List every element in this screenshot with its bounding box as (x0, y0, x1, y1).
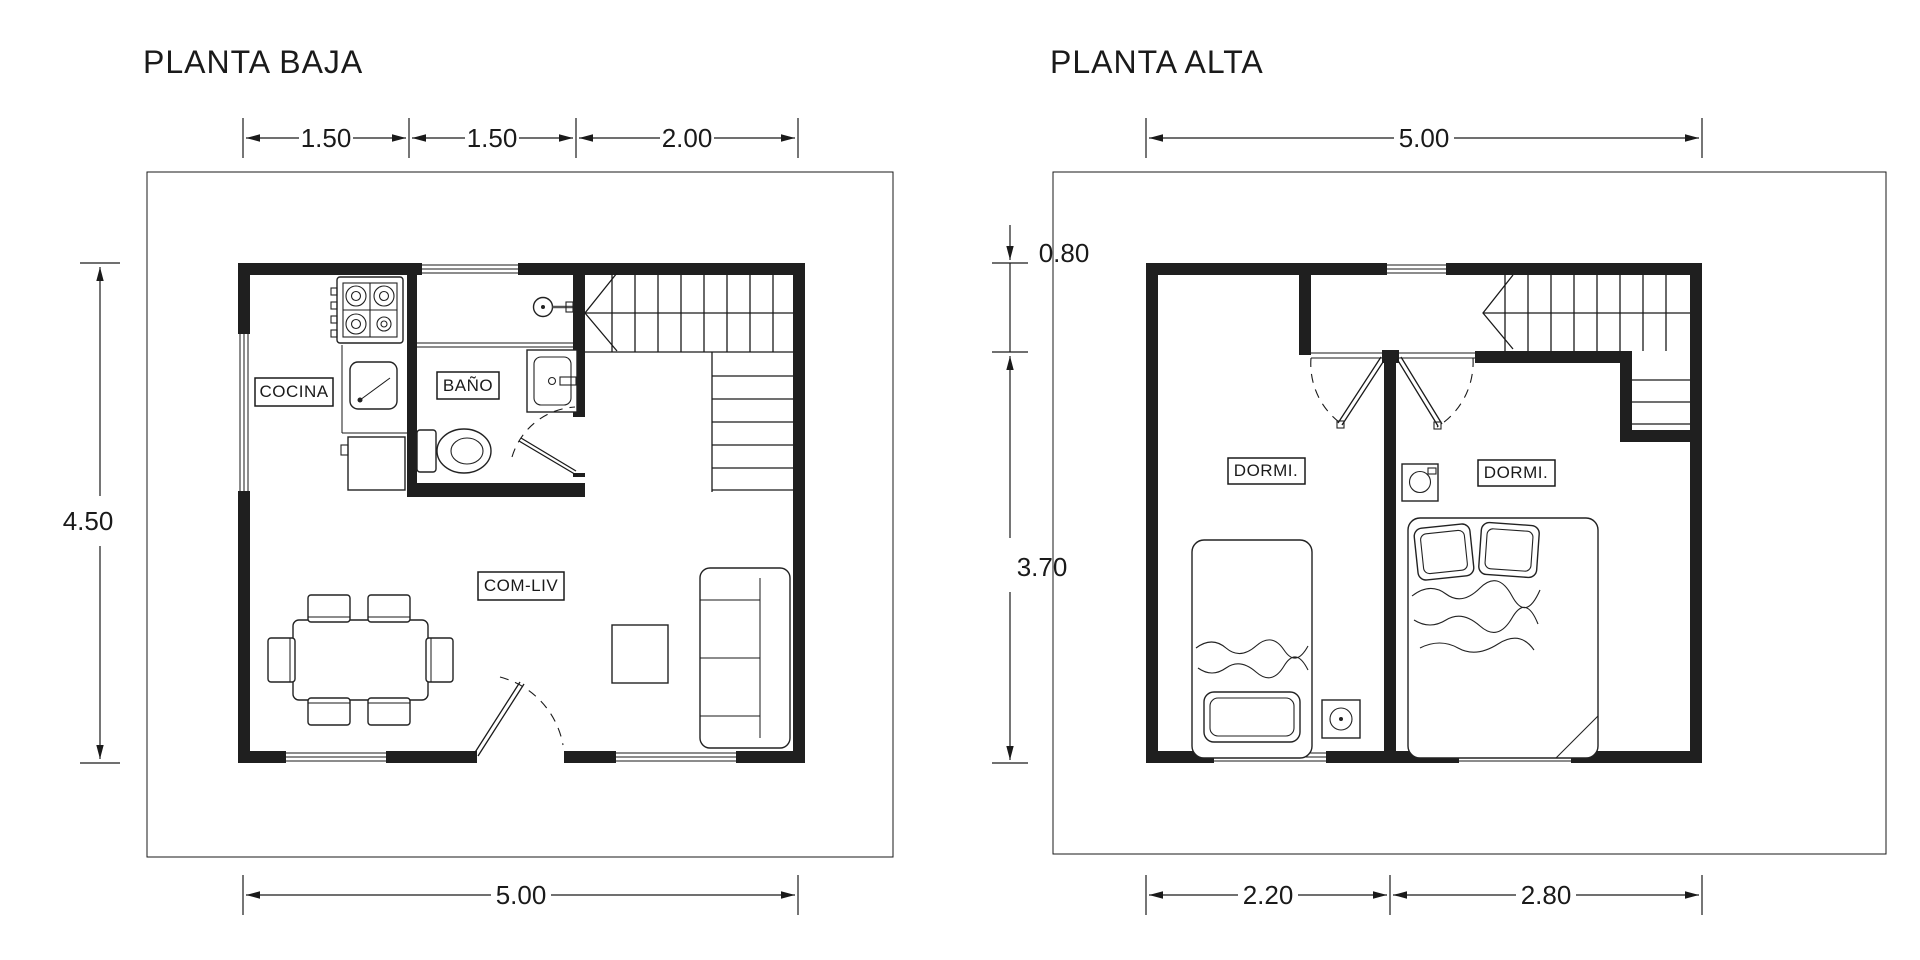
dim-bottom-width: 5.00 (496, 880, 547, 910)
dormi-right-label: DORMI. (1484, 463, 1548, 482)
living-bottom-window-left (282, 751, 390, 763)
shower-head-symbol (534, 298, 574, 317)
dim-bottom: 5.00 (243, 875, 798, 915)
dim-left-lower: 3.70 (1017, 552, 1068, 582)
kitchen-left-window (238, 330, 250, 495)
planta-baja-plan: PLANTA BAJA (63, 44, 893, 915)
kitchen-cabinet (341, 437, 405, 490)
bedroom-left-door-swing-arc (1311, 358, 1343, 425)
dim-left-alta: 0.80 3.70 (992, 225, 1089, 763)
double-bed (1408, 518, 1598, 758)
living-bottom-window-right (612, 751, 740, 763)
sofa (700, 568, 790, 748)
bath-top-window (418, 263, 522, 275)
bano-label: BAÑO (443, 376, 493, 395)
stair-treads-upper-alta (1483, 275, 1690, 351)
kitchen-sink (350, 362, 397, 409)
dim-bottom-alta: 2.20 2.80 (1146, 875, 1702, 915)
planta-baja-dimensions: 1.50 1.50 2.00 4.50 5.00 (63, 118, 798, 915)
dim-top-alta: 5.00 (1146, 118, 1702, 158)
dim-top: 1.50 1.50 2.00 (243, 118, 798, 158)
cocina-label: COCINA (259, 382, 328, 401)
nightstand-left (1322, 700, 1360, 738)
bedroom-right-door-swing-arc (1437, 358, 1473, 427)
coffee-table (612, 625, 668, 683)
stairwell-side-wall (1620, 351, 1632, 442)
hall-top-window (1383, 263, 1450, 275)
single-bed (1192, 540, 1312, 758)
bedroom-partition-wall (1384, 355, 1396, 751)
bathroom-door (512, 407, 585, 477)
comliv-label: COM-LIV (484, 576, 559, 595)
toilet-symbol (417, 429, 491, 473)
floor-plan-sheet: PLANTA BAJA (0, 0, 1920, 960)
dim-left-upper: 0.80 (1039, 238, 1090, 268)
dim-left-height: 4.50 (63, 506, 114, 536)
bedroom-left-door (1311, 357, 1385, 428)
stairwell-bottom-wall (1620, 430, 1702, 442)
bedroom-right-door (1397, 357, 1473, 429)
planta-alta-plan: PLANTA ALTA (992, 44, 1886, 915)
bedroom-left-furniture (1192, 540, 1360, 758)
stair-treads-upper (585, 275, 793, 352)
entrance-door (474, 677, 567, 763)
nightstand-right (1402, 464, 1438, 501)
stair-break-chevron-alta (1483, 275, 1513, 349)
dim-top-width-alta: 5.00 (1399, 123, 1450, 153)
bath-bottom-wall (407, 483, 585, 497)
planta-baja-title: PLANTA BAJA (143, 44, 363, 80)
dim-top-3: 2.00 (662, 123, 713, 153)
planta-alta-staircase (1483, 275, 1690, 424)
hall-stub-wall (1299, 275, 1311, 355)
floor-plan-drawing: PLANTA BAJA (0, 0, 1920, 960)
planta-alta-title: PLANTA ALTA (1050, 44, 1264, 80)
dim-left: 4.50 (63, 263, 120, 763)
stair-landing-wall (1475, 351, 1632, 363)
entrance-door-swing-arc (500, 677, 563, 745)
dim-bottom-2-alta: 2.80 (1521, 880, 1572, 910)
kitchen-bath-partition-wall (407, 275, 417, 497)
dim-bottom-1-alta: 2.20 (1243, 880, 1294, 910)
dim-top-1: 1.50 (301, 123, 352, 153)
dim-top-2: 1.50 (467, 123, 518, 153)
stair-treads-well (1632, 380, 1690, 424)
stove-symbol (331, 277, 403, 343)
bedroom-right-furniture (1402, 464, 1598, 758)
planta-alta-dimensions: 5.00 0.80 3.70 2.20 (992, 118, 1702, 915)
stair-treads-side (712, 352, 793, 492)
bathroom-sink (527, 350, 577, 412)
single-bed-pillow (1204, 692, 1300, 742)
dormi-left-label: DORMI. (1234, 461, 1298, 480)
kitchen (331, 277, 407, 490)
dining-table (293, 620, 428, 700)
bathroom-door-swing-arc (512, 407, 575, 457)
planta-baja-staircase (585, 273, 793, 492)
